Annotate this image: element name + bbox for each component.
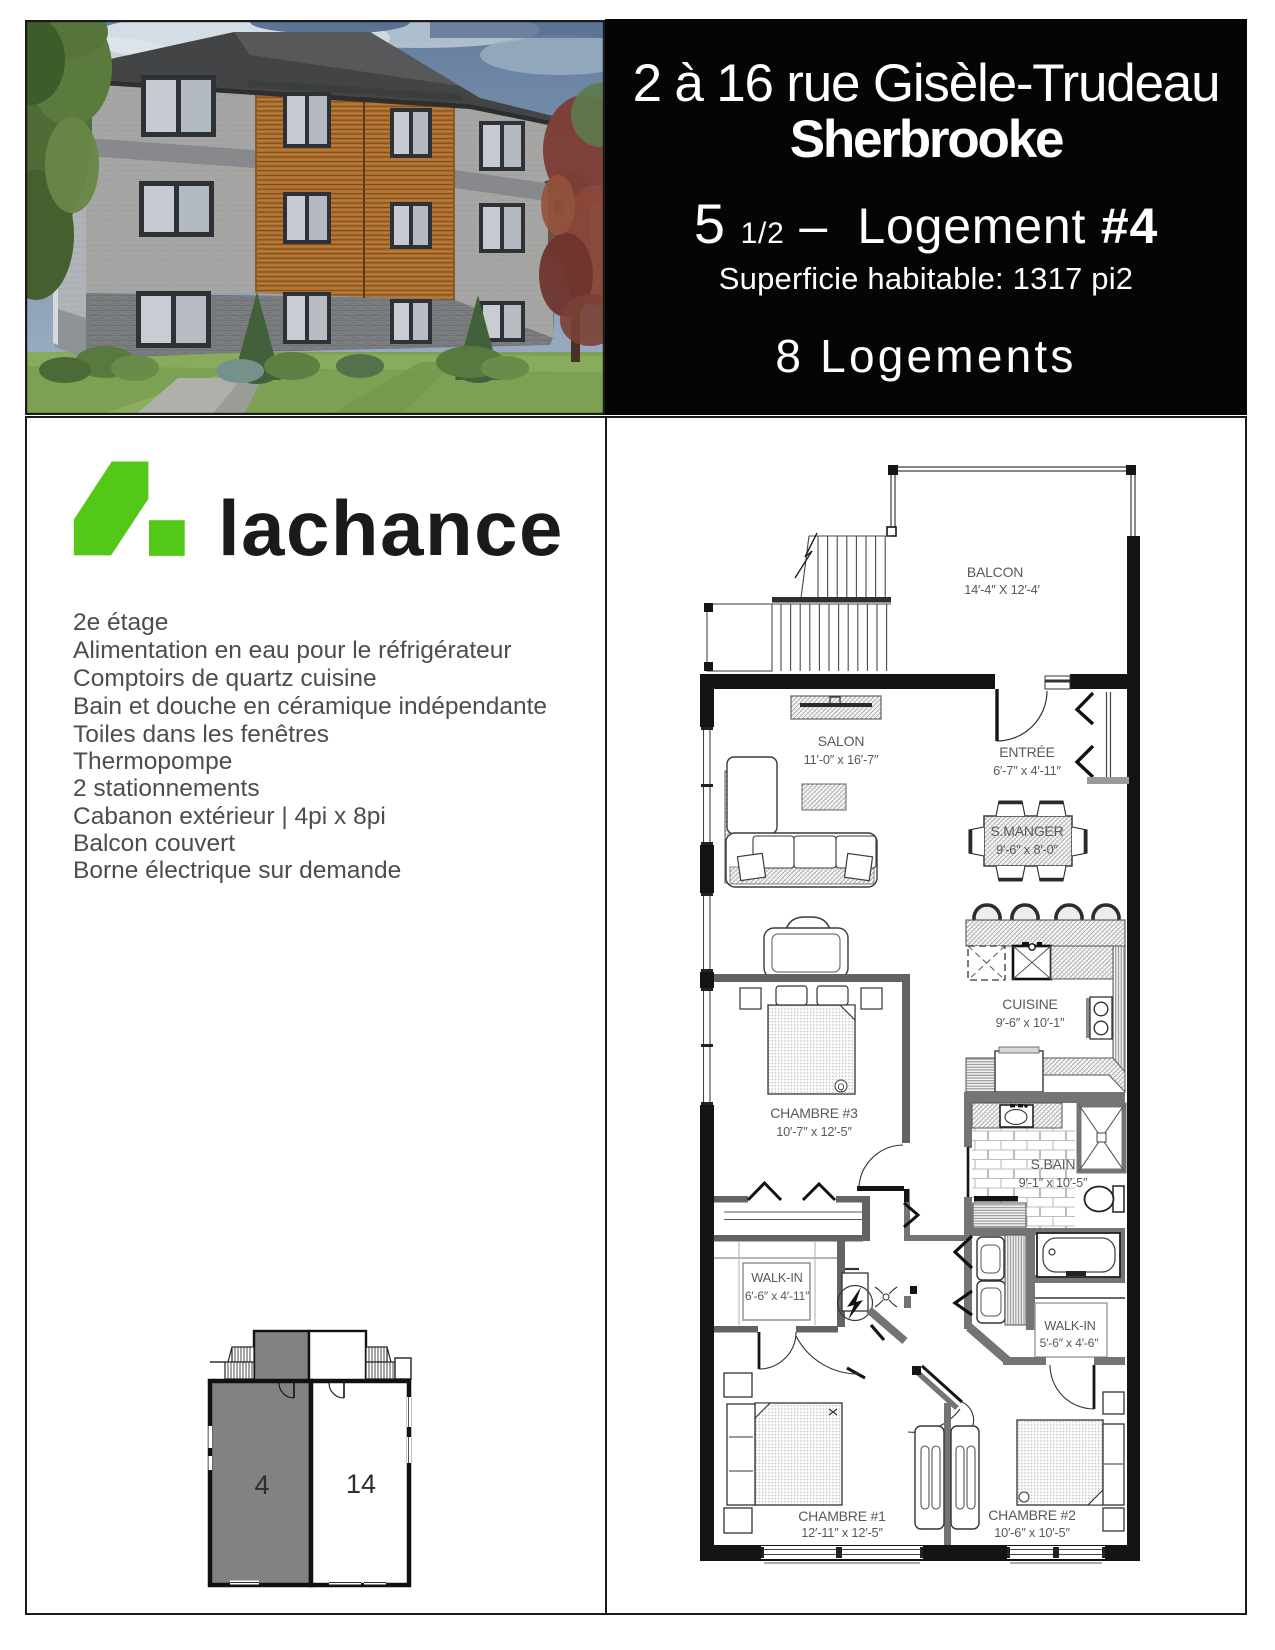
svg-text:11′-0″ x 16′-7″: 11′-0″ x 16′-7″ — [804, 752, 879, 767]
svg-text:6′-6″ x 4′-11″: 6′-6″ x 4′-11″ — [745, 1289, 810, 1303]
svg-text:ENTRÉE: ENTRÉE — [999, 744, 1055, 760]
svg-text:Borne électrique sur demande: Borne électrique sur demande — [73, 857, 401, 884]
svg-text:Q: Q — [837, 1082, 844, 1092]
svg-text:BALCON: BALCON — [967, 564, 1023, 580]
svg-text:5′-6″ x 4′-6″: 5′-6″ x 4′-6″ — [1040, 1336, 1100, 1350]
svg-text:12′-11″ x 12′-5″: 12′-11″ x 12′-5″ — [801, 1525, 883, 1540]
svg-text:9′-1″ x 10′-5″: 9′-1″ x 10′-5″ — [1019, 1175, 1088, 1190]
svg-text:9′-6″ x 8′-0″: 9′-6″ x 8′-0″ — [996, 842, 1058, 857]
svg-text:Thermopompe: Thermopompe — [73, 748, 232, 775]
svg-text:2 stationnements: 2 stationnements — [73, 775, 260, 802]
svg-text:WALK-IN: WALK-IN — [1044, 1318, 1095, 1333]
svg-text:S.MANGER: S.MANGER — [990, 823, 1063, 839]
svg-text:Bain et douche en céramique in: Bain et douche en céramique indépendante — [73, 693, 547, 720]
svg-text:2e étage: 2e étage — [73, 609, 168, 636]
svg-text:14′-4″ X 12′-4′: 14′-4″ X 12′-4′ — [964, 582, 1040, 597]
svg-text:Toiles dans les fenêtres: Toiles dans les fenêtres — [73, 721, 329, 748]
svg-text:Comptoirs de quartz cuisine: Comptoirs de quartz cuisine — [73, 665, 377, 692]
svg-text:10′-7″ x 12′-5″: 10′-7″ x 12′-5″ — [776, 1124, 852, 1139]
svg-text:6′-7″ x 4′-11″: 6′-7″ x 4′-11″ — [993, 763, 1061, 778]
svg-text:lachance: lachance — [218, 484, 564, 572]
svg-text:SALON: SALON — [818, 733, 864, 749]
svg-text:S.BAIN: S.BAIN — [1031, 1156, 1076, 1172]
svg-text:9′-6″ x 10′-1″: 9′-6″ x 10′-1″ — [996, 1015, 1065, 1030]
svg-text:Balcon couvert: Balcon couvert — [73, 830, 235, 857]
svg-text:CUISINE: CUISINE — [1002, 996, 1057, 1012]
svg-text:14: 14 — [346, 1469, 376, 1499]
svg-text:Alimentation en eau pour le ré: Alimentation en eau pour le réfrigérateu… — [73, 637, 512, 664]
svg-text:CHAMBRE #1: CHAMBRE #1 — [798, 1508, 886, 1524]
svg-text:WALK-IN: WALK-IN — [751, 1270, 802, 1285]
svg-text:CHAMBRE #3: CHAMBRE #3 — [770, 1105, 858, 1121]
svg-text:CHAMBRE #2: CHAMBRE #2 — [988, 1507, 1076, 1523]
svg-text:Cabanon extérieur | 4pi x 8pi: Cabanon extérieur | 4pi x 8pi — [73, 803, 386, 830]
svg-text:10′-6″ x 10′-5″: 10′-6″ x 10′-5″ — [994, 1525, 1070, 1540]
svg-text:4: 4 — [254, 1470, 269, 1500]
